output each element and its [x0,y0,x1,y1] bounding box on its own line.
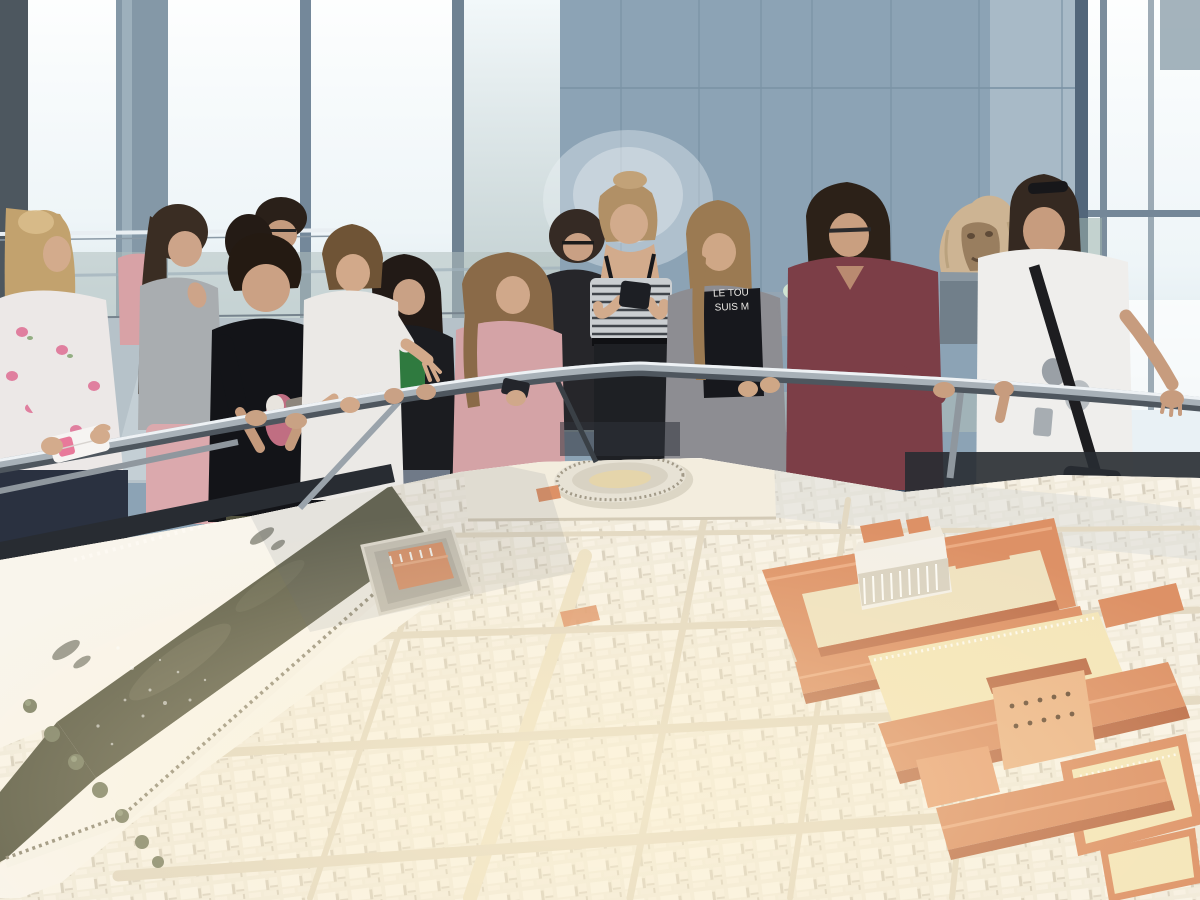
hand [245,410,267,426]
face [563,233,593,261]
face [610,204,648,244]
hair-front [692,250,706,380]
hand [285,413,307,429]
window-transom [1088,210,1200,217]
mask-eye [967,233,975,239]
graphic-detail [1033,407,1053,436]
window-mullion [1148,0,1154,480]
face [242,264,290,312]
hand [933,382,955,398]
hand [994,381,1014,397]
phone [619,280,652,309]
face [1023,207,1065,255]
tshirt-text-line1: LE TOU [713,287,749,299]
face [168,231,202,267]
face [829,213,869,257]
hair-shine [18,210,54,234]
hand [738,381,758,397]
face [336,254,370,292]
glasses [562,241,594,245]
face [496,276,530,314]
hand [41,437,63,455]
hand [760,377,780,393]
face [43,236,71,272]
hand [384,388,404,404]
face [702,233,736,271]
corner-panel [1160,0,1200,70]
hair-bun [613,171,647,189]
museum-photo: LE TOU SUIS M [0,0,1200,900]
hand [416,384,436,400]
hand [340,397,360,413]
tshirt-text-line2: SUIS M [715,301,750,313]
hand [90,428,110,444]
mask-eye [985,231,993,237]
hand [506,390,526,406]
